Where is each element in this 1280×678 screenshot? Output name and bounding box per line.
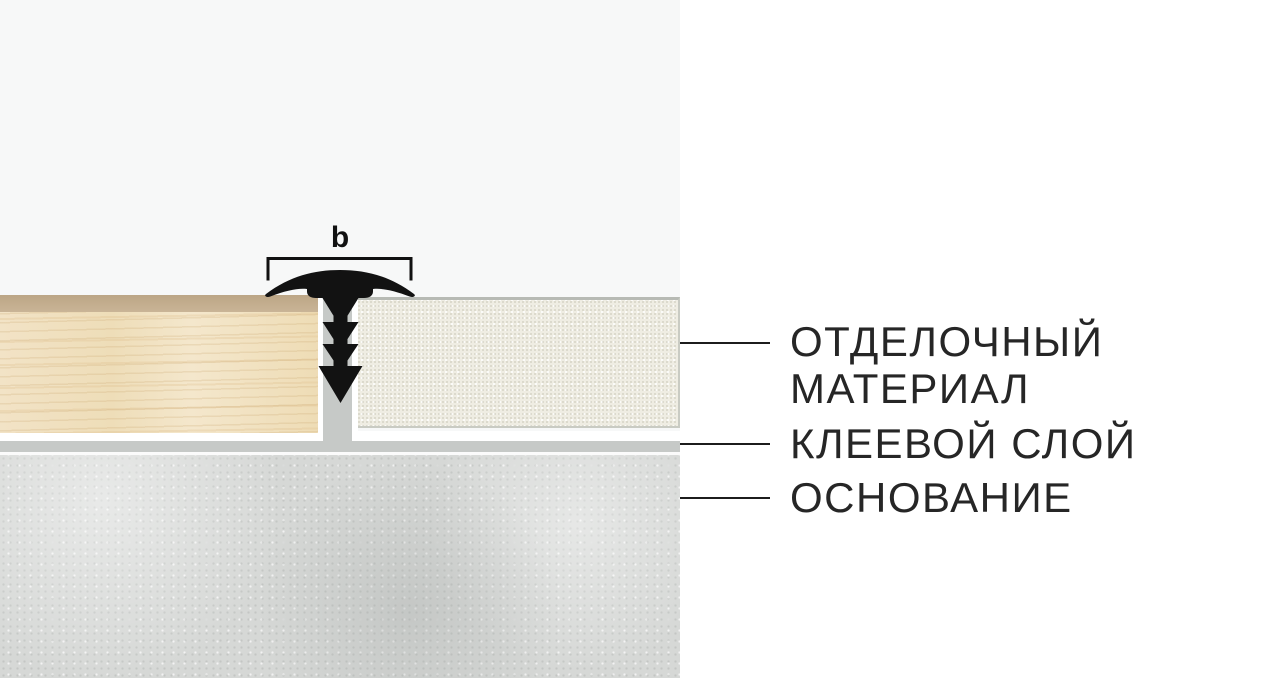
leader-line-adhesive-layer: [678, 443, 770, 445]
label-substrate: ОСНОВАНИЕ: [790, 474, 1073, 521]
label-finishing-material-line1: ОТДЕЛОЧНЫЙ: [790, 318, 1103, 365]
label-finishing-material: ОТДЕЛОЧНЫЙ МАТЕРИАЛ: [790, 318, 1103, 412]
diagram-canvas: b ОТДЕЛОЧНЫЙ МАТЕРИАЛ КЛЕЕВОЙ СЛОЙ ОСНОВ…: [0, 0, 1280, 678]
t-profile-diagram: [0, 0, 680, 678]
callout-panel: ОТДЕЛОЧНЫЙ МАТЕРИАЛ КЛЕЕВОЙ СЛОЙ ОСНОВАН…: [680, 0, 1280, 678]
label-finishing-material-line2: МАТЕРИАЛ: [790, 365, 1103, 412]
label-adhesive-layer: КЛЕЕВОЙ СЛОЙ: [790, 420, 1137, 467]
profile-barbs: [319, 298, 363, 403]
leader-line-finishing-material: [678, 342, 770, 344]
leader-line-substrate: [678, 497, 770, 499]
cross-section-illustration: b: [0, 0, 680, 678]
dimension-label: b: [250, 221, 430, 255]
